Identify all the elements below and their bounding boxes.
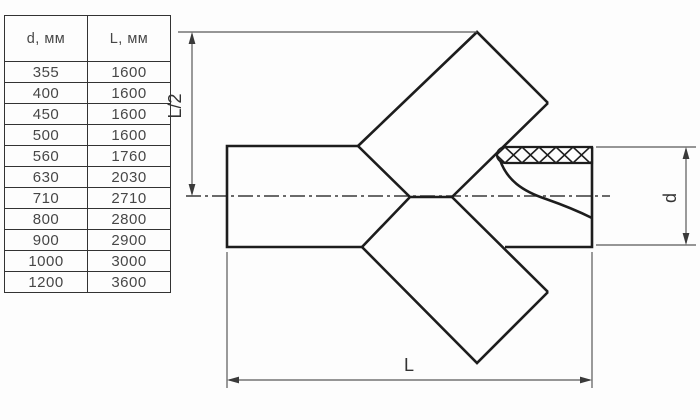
d-arrowhead-up (683, 147, 690, 159)
l2-arrowhead-up (189, 32, 196, 44)
hatch-collar (497, 147, 592, 163)
dim-label-half-length: L/2 (165, 93, 185, 118)
upper-branch-outline (358, 32, 548, 146)
l2-arrowhead-down (189, 184, 196, 196)
d-arrowhead-down (683, 233, 690, 245)
dim-label-diameter: d (660, 193, 680, 203)
saddle-curve (500, 160, 592, 218)
wye-fitting-diagram: L/2 d L (0, 0, 700, 420)
l-arrowhead-right (580, 377, 592, 384)
l-arrowhead-left (227, 377, 239, 384)
branch-inner-seams (452, 103, 548, 292)
dim-label-length: L (404, 355, 414, 375)
screenshot-root: d, мм L, мм 3551600400160045016005001600… (0, 0, 700, 420)
